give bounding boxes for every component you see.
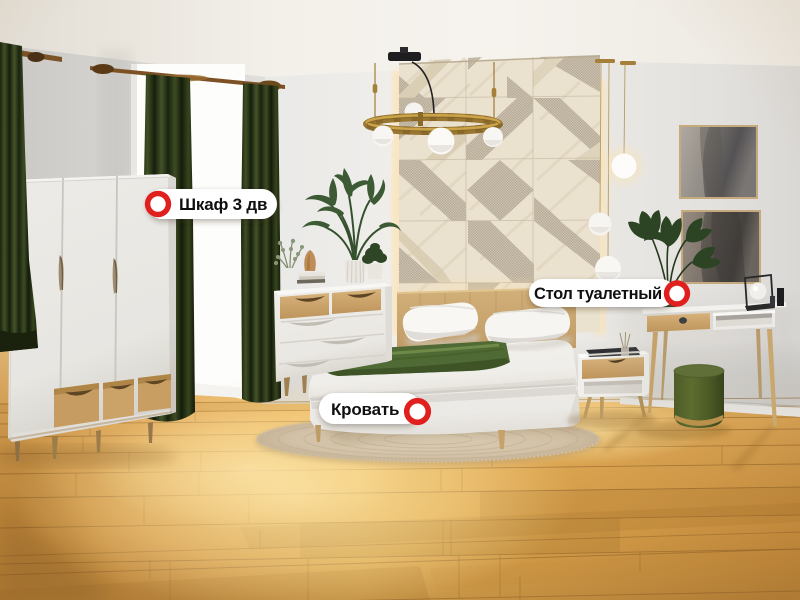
svg-text:Шкаф 3 дв: Шкаф 3 дв: [179, 195, 267, 214]
svg-text:Кровать: Кровать: [331, 400, 399, 419]
svg-text:Стол туалетный: Стол туалетный: [534, 285, 662, 303]
